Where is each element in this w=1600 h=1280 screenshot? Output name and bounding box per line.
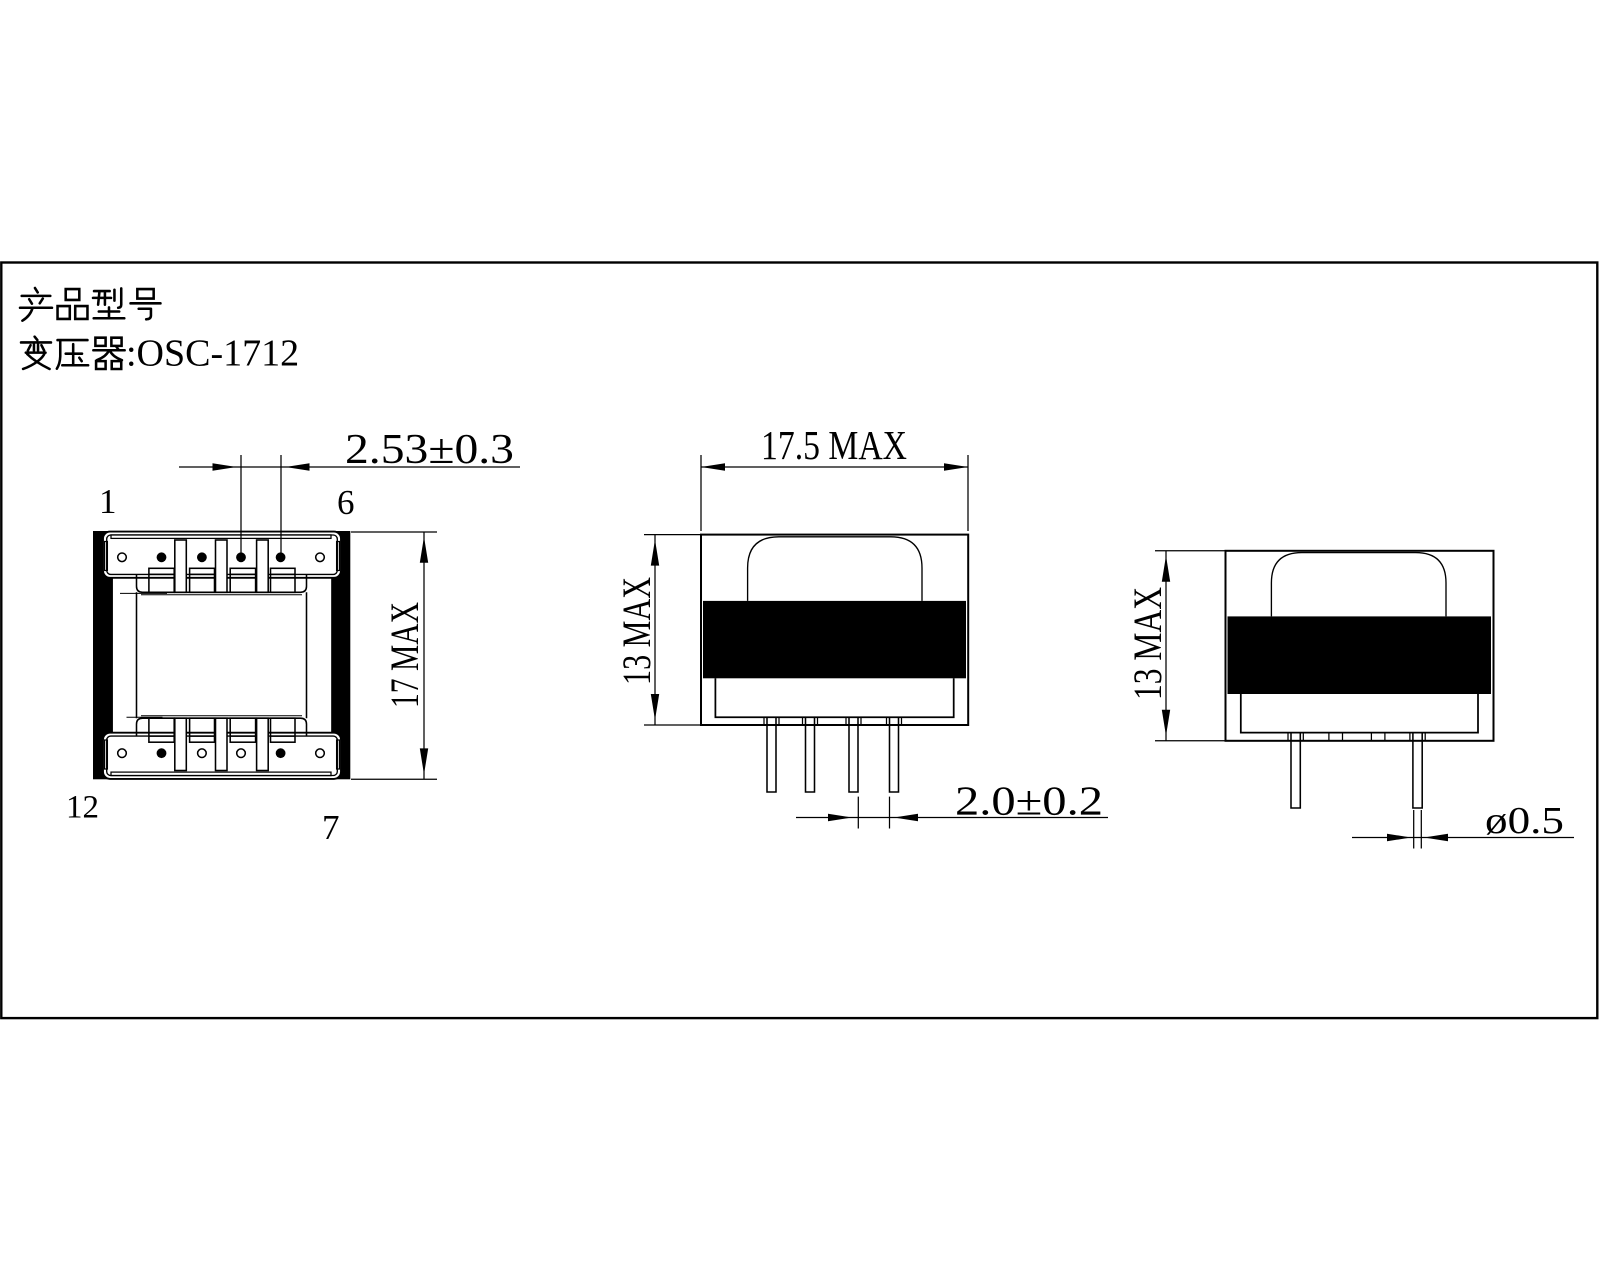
svg-text:1: 1 (99, 482, 117, 521)
svg-text:2.0±0.2: 2.0±0.2 (955, 778, 1103, 824)
svg-text:13 MAX: 13 MAX (1125, 587, 1170, 700)
svg-text:13 MAX: 13 MAX (614, 577, 659, 685)
svg-text:17 MAX: 17 MAX (382, 602, 427, 708)
svg-text:2.53±0.3: 2.53±0.3 (345, 427, 514, 473)
svg-text:17.5 MAX: 17.5 MAX (761, 422, 907, 468)
svg-text:12: 12 (66, 790, 99, 826)
svg-text:ø0.5: ø0.5 (1485, 800, 1564, 842)
svg-text:7: 7 (322, 808, 340, 847)
svg-text::OSC-1712: :OSC-1712 (126, 333, 299, 375)
svg-text:6: 6 (337, 483, 355, 522)
